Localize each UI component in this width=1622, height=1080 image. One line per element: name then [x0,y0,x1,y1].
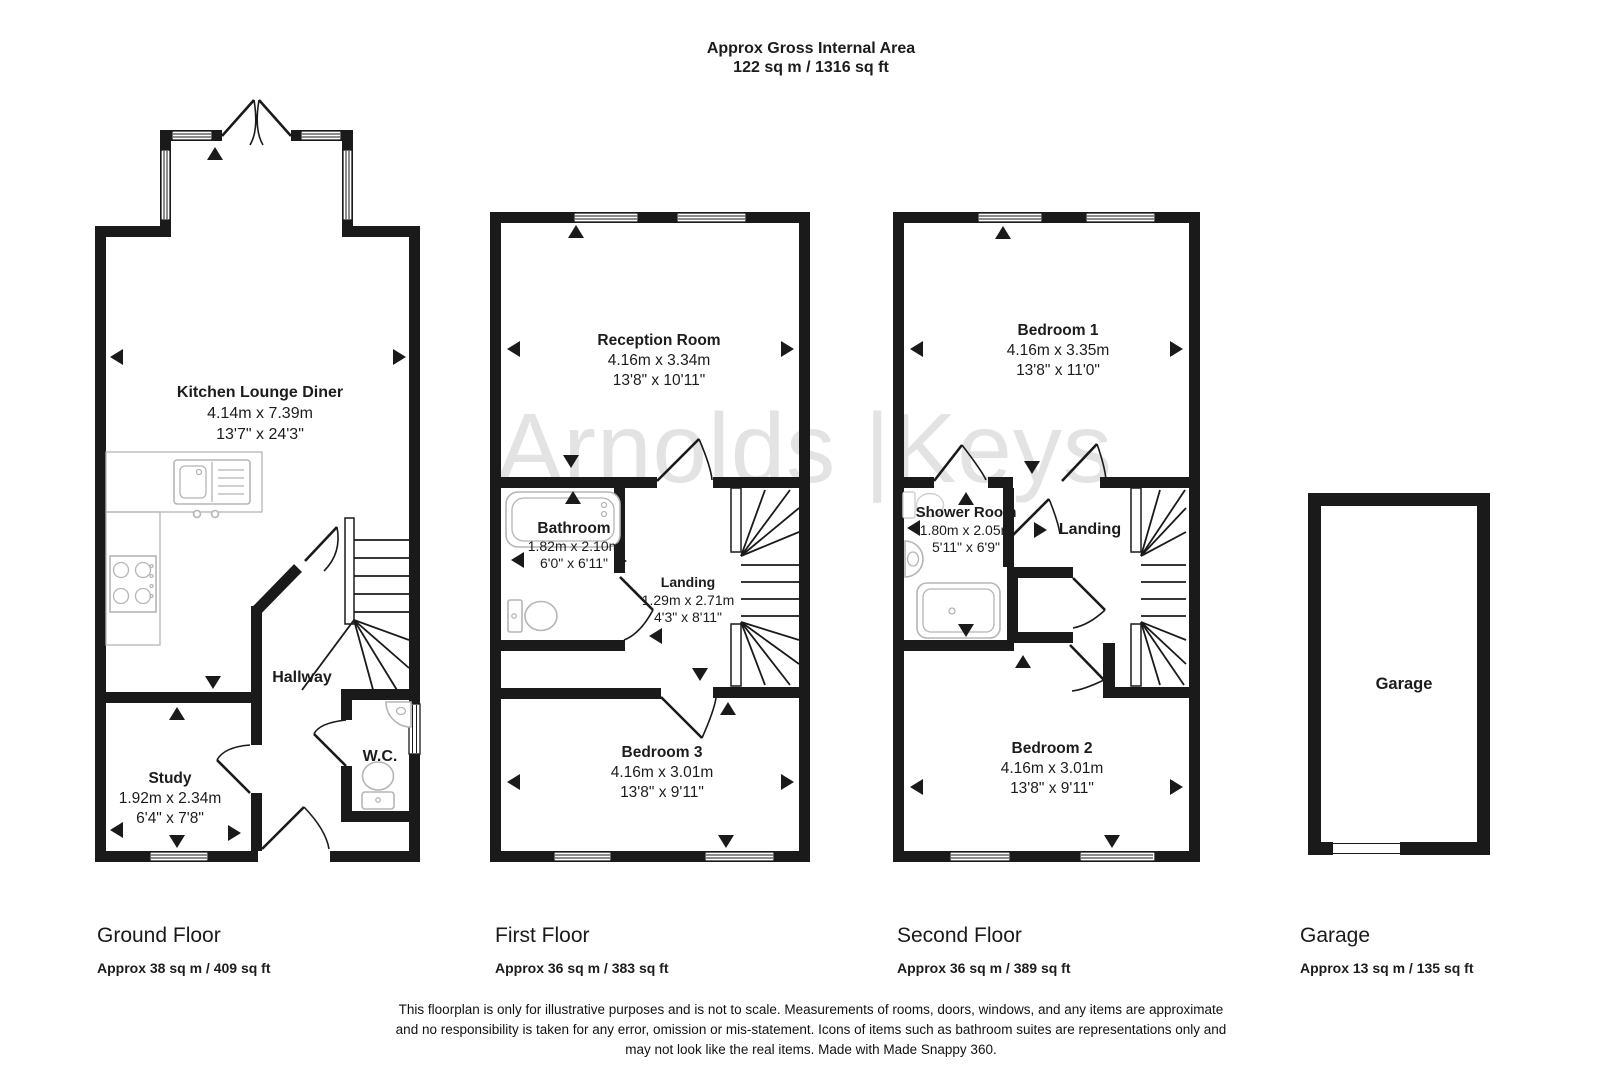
room-dim-metric: 4.16m x 3.34m [597,351,720,371]
window [301,131,341,140]
window [574,213,638,222]
room-dim-imperial: 6'0" x 6'11" [528,555,621,573]
area-second: Approx 36 sq m / 389 sq ft [897,960,1071,976]
room-dim-metric: 1.92m x 2.34m [119,789,222,809]
garage-door [1333,842,1400,855]
room-label-bathroom: Bathroom 1.82m x 2.10m 6'0" x 6'11" [528,520,621,573]
floorplan-canvas: Arnolds |Keys [0,0,1622,1080]
french-doors-icon [222,100,291,145]
window [343,150,352,220]
room-dim-metric: 4.14m x 7.39m [177,403,343,424]
room-label-wc: W.C. [363,748,398,766]
room-label-bedroom2: Bedroom 2 4.16m x 3.01m 13'8" x 9'11" [1001,739,1104,799]
caption-first: First Floor [495,924,590,948]
room-dim-metric: 4.16m x 3.01m [611,763,714,783]
window [150,852,208,861]
area-garage: Approx 13 sq m / 135 sq ft [1300,960,1474,976]
window [1080,852,1155,861]
room-dim-metric: 1.80m x 2.05m [916,522,1017,540]
room-dim-imperial: 13'8" x 9'11" [611,783,714,803]
room-name: Bedroom 2 [1001,739,1104,759]
caption-second: Second Floor [897,924,1022,948]
room-label-shower: Shower Room 1.80m x 2.05m 5'11" x 6'9" [916,504,1017,557]
room-label-hallway: Hallway [272,669,332,687]
room-dim-imperial: 4'3" x 8'11" [642,609,735,627]
window [705,852,774,861]
room-dim-imperial: 13'8" x 11'0" [1007,361,1110,381]
room-name: Bedroom 1 [1007,321,1110,341]
room-dim-imperial: 13'8" x 9'11" [1001,779,1104,799]
room-label-landing-second: Landing [1059,521,1121,539]
window [950,852,1010,861]
window [554,852,611,861]
room-label-garage: Garage [1376,675,1433,694]
room-name: Landing [642,574,735,592]
shower-tray-icon [917,583,1000,638]
room-label-bedroom3: Bedroom 3 4.16m x 3.01m 13'8" x 9'11" [611,743,714,803]
room-label-bedroom1: Bedroom 1 4.16m x 3.35m 13'8" x 11'0" [1007,321,1110,381]
window [161,150,170,220]
disclaimer-line-1: This floorplan is only for illustrative … [0,1002,1622,1017]
window [1086,213,1155,222]
room-label-landing-first: Landing 1.29m x 2.71m 4'3" x 8'11" [642,574,735,627]
room-name: Bedroom 3 [611,743,714,763]
area-ground: Approx 38 sq m / 409 sq ft [97,960,271,976]
room-name: Reception Room [597,331,720,351]
room-name: Kitchen Lounge Diner [177,382,343,403]
garage-walls [1308,493,1490,855]
window [677,213,746,222]
page-title: Approx Gross Internal Area [0,40,1622,58]
room-dim-imperial: 13'8" x 10'11" [597,371,720,391]
garage-plan [1308,493,1490,855]
disclaimer-line-2: and no responsibility is taken for any e… [0,1022,1622,1037]
window [978,213,1042,222]
door-swing [217,527,346,849]
room-dim-metric: 4.16m x 3.01m [1001,759,1104,779]
room-label-kitchen: Kitchen Lounge Diner 4.14m x 7.39m 13'7"… [177,382,343,445]
window [172,131,212,140]
room-label-reception: Reception Room 4.16m x 3.34m 13'8" x 10'… [597,331,720,391]
page-subtitle: 122 sq m / 1316 sq ft [0,59,1622,77]
floorplan-drawing [0,0,1622,1080]
stairs-icon [1131,488,1186,686]
area-first: Approx 36 sq m / 383 sq ft [495,960,669,976]
room-name: Study [119,769,222,789]
caption-garage: Garage [1300,924,1370,948]
room-dim-metric: 1.82m x 2.10m [528,538,621,556]
toilet-icon [362,762,394,809]
room-name: Bathroom [528,520,621,538]
corner-basin-icon [386,702,411,727]
room-dim-metric: 4.16m x 3.35m [1007,341,1110,361]
room-name: Shower Room [916,504,1017,522]
hob-icon [110,556,156,612]
room-dim-imperial: 5'11" x 6'9" [916,539,1017,557]
toilet-icon [508,600,557,632]
stairs-icon [731,488,799,686]
kitchen-sink-icon [174,460,250,504]
room-dim-imperial: 6'4" x 7'8" [119,809,222,829]
room-dim-imperial: 13'7" x 24'3" [177,424,343,445]
caption-ground: Ground Floor [97,924,221,948]
room-label-study: Study 1.92m x 2.34m 6'4" x 7'8" [119,769,222,829]
room-dim-metric: 1.29m x 2.71m [642,592,735,610]
disclaimer-line-3: may not look like the real items. Made w… [0,1042,1622,1057]
